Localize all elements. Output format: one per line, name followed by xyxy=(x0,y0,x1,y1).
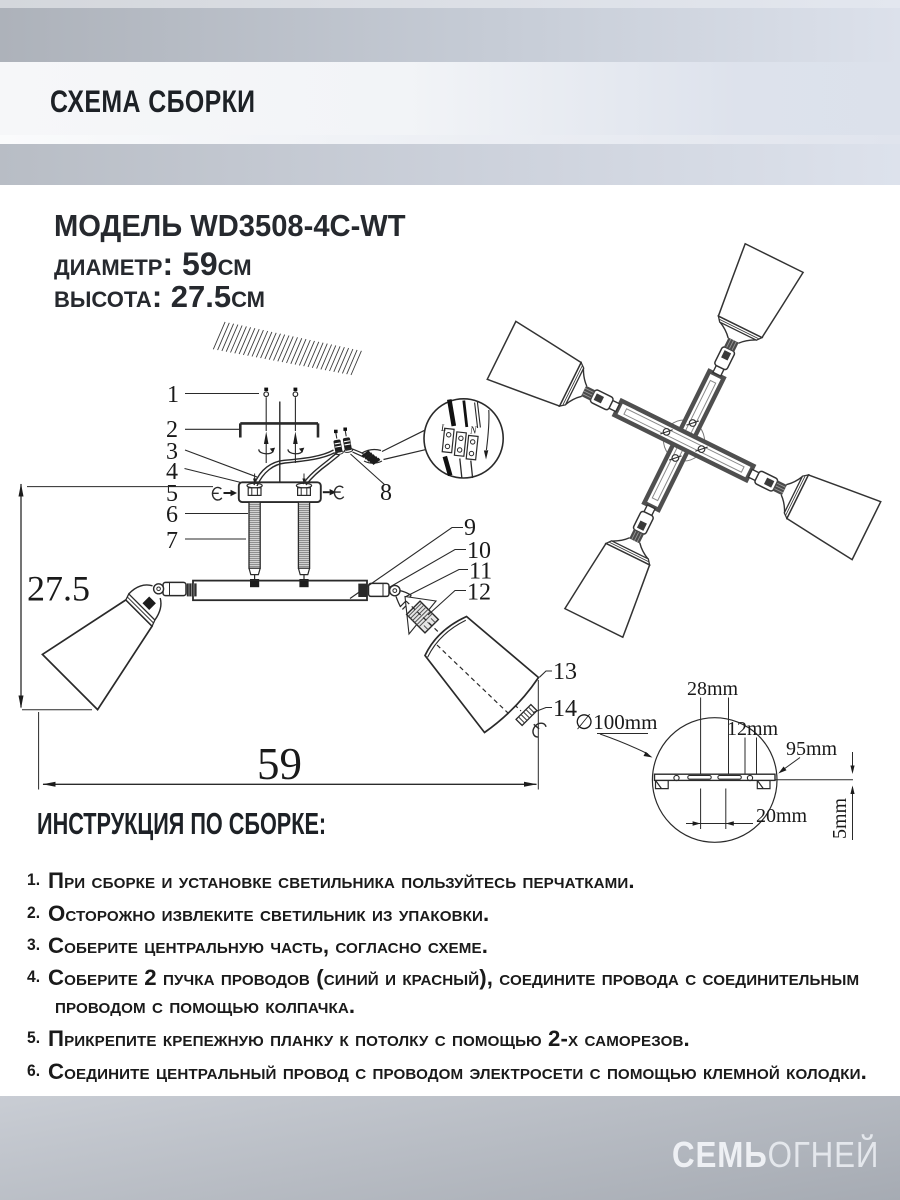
svg-text:28mm: 28mm xyxy=(687,678,739,700)
svg-text:95mm: 95mm xyxy=(786,738,838,760)
svg-text:5mm: 5mm xyxy=(829,797,851,839)
svg-text:∅100mm: ∅100mm xyxy=(575,710,657,734)
svg-text:N: N xyxy=(469,426,478,437)
svg-text:59: 59 xyxy=(257,739,302,789)
svg-text:6: 6 xyxy=(166,502,178,528)
svg-text:14: 14 xyxy=(553,696,577,722)
svg-text:8: 8 xyxy=(380,480,392,506)
svg-text:12: 12 xyxy=(467,580,491,606)
svg-text:13: 13 xyxy=(553,659,577,685)
svg-text:20mm: 20mm xyxy=(756,805,808,827)
svg-text:7: 7 xyxy=(166,528,178,554)
svg-text:12mm: 12mm xyxy=(727,718,779,740)
svg-text:1: 1 xyxy=(167,382,179,408)
svg-text:27.5: 27.5 xyxy=(27,569,90,609)
svg-text:L: L xyxy=(440,423,446,433)
